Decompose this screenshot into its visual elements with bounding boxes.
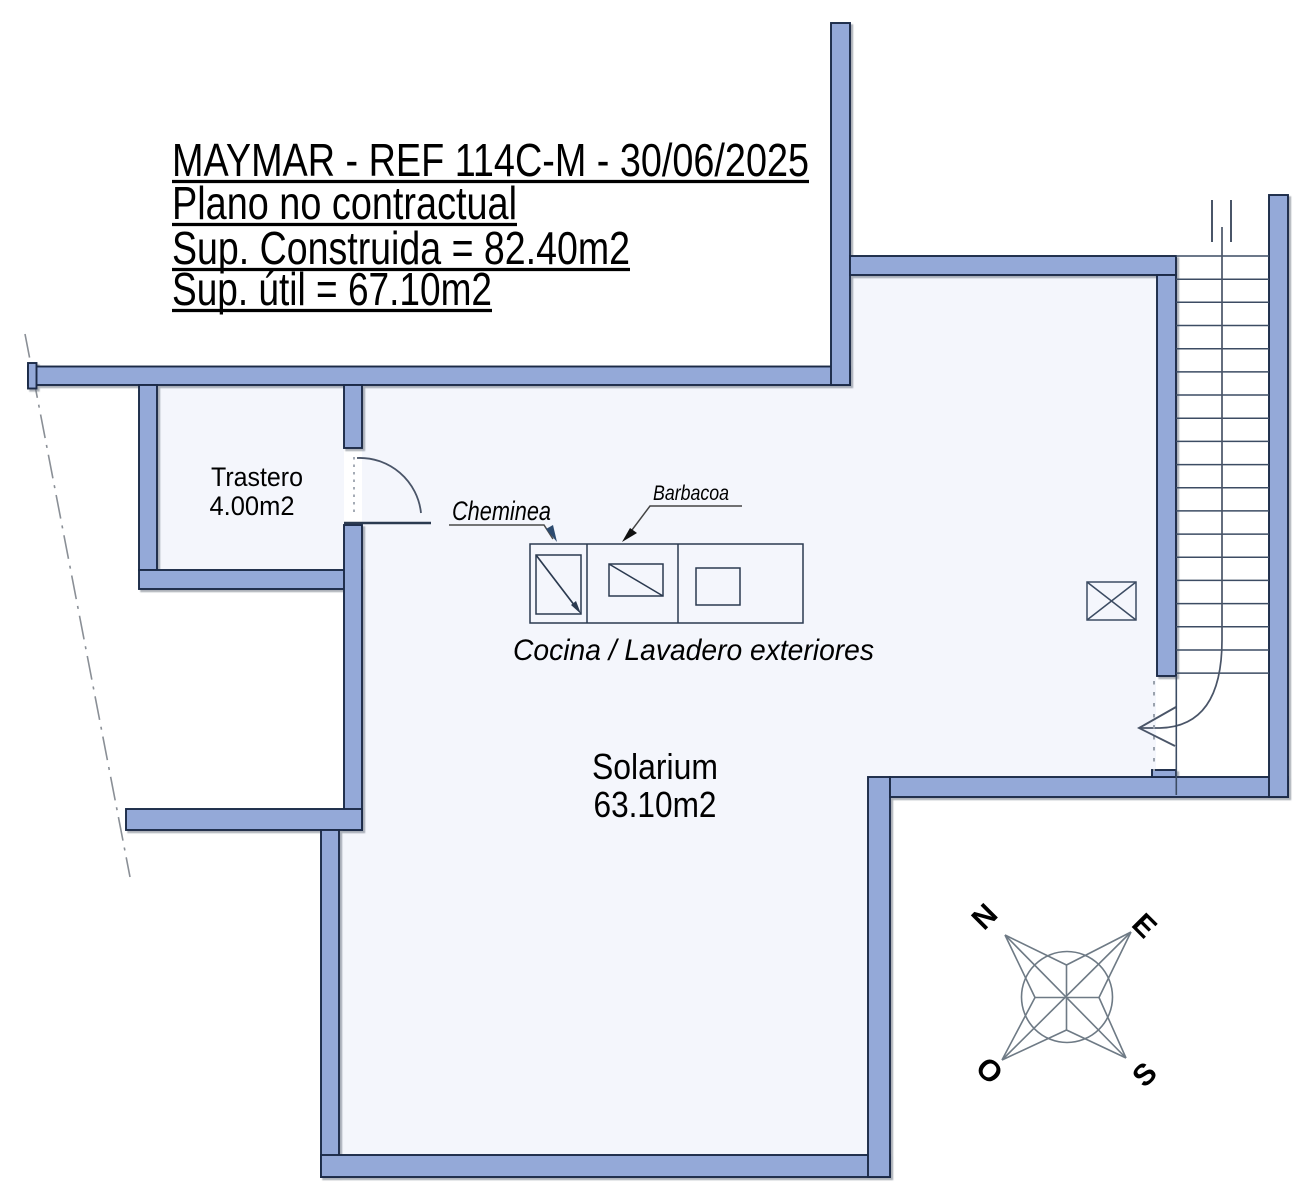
svg-text:Cocina / Lavadero exteriores: Cocina / Lavadero exteriores [513,634,874,667]
svg-text:Sup. útil = 67.10m2: Sup. útil = 67.10m2 [172,263,492,315]
svg-text:Solarium: Solarium [592,746,718,787]
svg-text:4.00m2: 4.00m2 [210,491,295,521]
svg-text:Cheminea: Cheminea [452,496,551,526]
svg-text:Barbacoa: Barbacoa [653,482,729,505]
svg-text:63.10m2: 63.10m2 [594,784,717,825]
svg-text:Trastero: Trastero [211,462,303,492]
